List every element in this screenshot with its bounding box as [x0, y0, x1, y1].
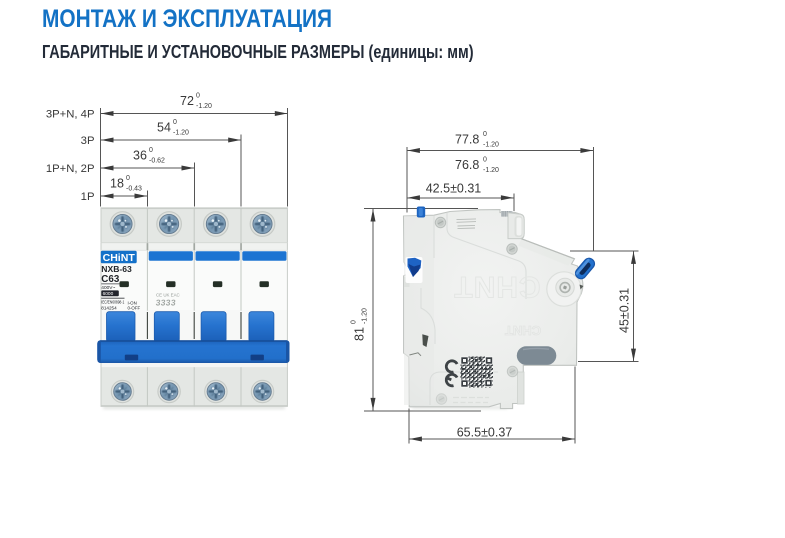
svg-text:72: 72 [180, 94, 194, 108]
svg-text:814254: 814254 [101, 306, 117, 311]
svg-text:3P: 3P [81, 135, 95, 147]
svg-text:400V~: 400V~ [101, 285, 115, 291]
svg-text:6000: 6000 [103, 291, 114, 297]
svg-text:0: 0 [149, 147, 153, 154]
svg-text:81: 81 [353, 327, 367, 341]
svg-text:CHNT: CHNT [453, 270, 540, 303]
svg-text:45±0.31: 45±0.31 [617, 288, 631, 333]
svg-text:0: 0 [173, 119, 177, 126]
svg-text:-1.20: -1.20 [361, 308, 368, 324]
svg-text:0-OFF: 0-OFF [128, 306, 141, 311]
svg-text:CHiNT: CHiNT [103, 252, 136, 264]
svg-text:-1.20: -1.20 [483, 167, 499, 174]
svg-text:77.8: 77.8 [455, 133, 479, 147]
svg-text:NXB-63: NXB-63 [101, 264, 132, 274]
svg-text:3333: 3333 [155, 298, 176, 308]
svg-text:0: 0 [483, 131, 487, 138]
svg-text:C63: C63 [101, 274, 120, 285]
svg-text:42.5±0.31: 42.5±0.31 [426, 182, 482, 196]
svg-text:36: 36 [133, 149, 147, 163]
svg-text:18: 18 [110, 177, 124, 191]
svg-text:54: 54 [157, 121, 171, 135]
svg-text:0: 0 [351, 320, 358, 324]
svg-text:IEC/EN60898-1: IEC/EN60898-1 [101, 299, 124, 304]
svg-text:-0.43: -0.43 [126, 186, 142, 193]
svg-text:-1.20: -1.20 [483, 142, 499, 149]
svg-text:I-ON: I-ON [128, 300, 137, 305]
svg-text:-0.62: -0.62 [149, 158, 165, 165]
svg-text:0: 0 [196, 93, 200, 100]
svg-text:1P: 1P [81, 191, 95, 203]
svg-text:CHNT: CHNT [505, 323, 541, 338]
svg-text:76.8: 76.8 [455, 158, 479, 172]
svg-text:3P+N, 4P: 3P+N, 4P [46, 109, 95, 121]
svg-text:65.5±0.37: 65.5±0.37 [457, 426, 513, 440]
svg-text:-1.20: -1.20 [196, 103, 212, 110]
svg-text:0: 0 [126, 175, 130, 182]
svg-text:-1.20: -1.20 [173, 130, 189, 137]
svg-text:1P+N, 2P: 1P+N, 2P [46, 163, 95, 175]
svg-text:0: 0 [483, 157, 487, 164]
